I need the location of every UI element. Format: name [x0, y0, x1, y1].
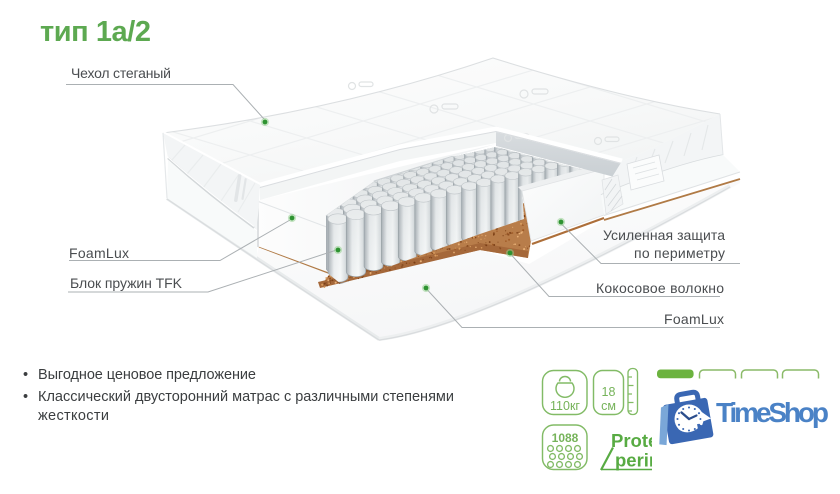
svg-text:18: 18 [602, 385, 616, 399]
svg-text:Выгодное ценовое предложение: Выгодное ценовое предложение [38, 367, 256, 383]
svg-text:TimeShop: TimeShop [716, 397, 829, 428]
svg-text:Кокосовое волокно: Кокосовое волокно [596, 280, 724, 296]
svg-text:Блок пружин TFK: Блок пружин TFK [70, 275, 183, 291]
svg-text:•: • [23, 367, 28, 383]
svg-text:•: • [23, 389, 28, 405]
svg-text:Усиленная защита: Усиленная защита [603, 227, 725, 243]
svg-text:жесткости: жесткости [38, 408, 109, 424]
svg-text:по периметру: по периметру [634, 245, 725, 261]
svg-text:FoamLux: FoamLux [69, 245, 129, 261]
svg-text:Классический двусторонний матр: Классический двусторонний матрас с разли… [38, 389, 454, 405]
svg-text:тип 1а/2: тип 1а/2 [40, 16, 151, 48]
svg-text:1088: 1088 [552, 431, 579, 445]
svg-text:Чехол стеганый: Чехол стеганый [71, 65, 171, 81]
svg-text:см: см [601, 399, 616, 413]
svg-text:110кг: 110кг [550, 399, 580, 413]
svg-text:FoamLux: FoamLux [664, 311, 724, 327]
